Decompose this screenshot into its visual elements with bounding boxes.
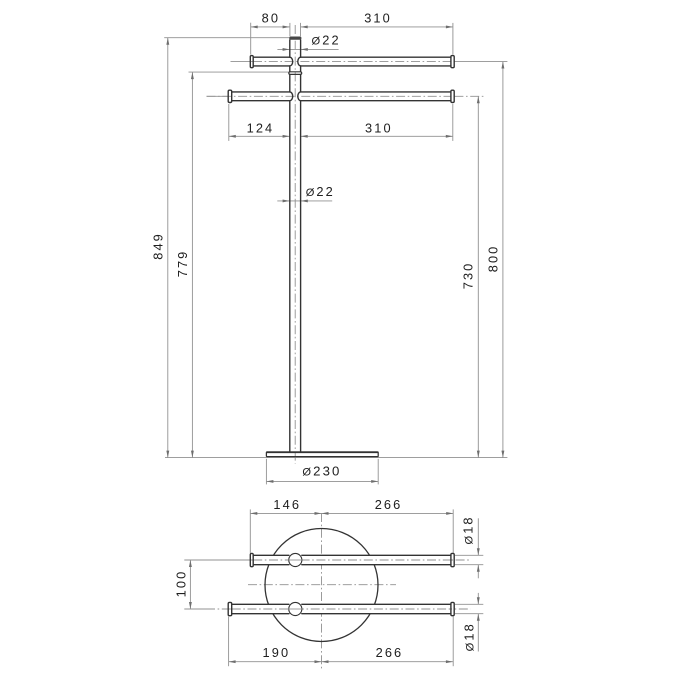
svg-text:Ø22: Ø22 [306,184,335,199]
svg-text:Ø22: Ø22 [312,33,341,48]
svg-text:Ø230: Ø230 [302,464,341,479]
svg-text:Ø18: Ø18 [461,515,476,544]
svg-text:190: 190 [263,645,291,660]
svg-text:266: 266 [376,645,404,660]
svg-text:849: 849 [150,232,165,260]
svg-text:779: 779 [175,250,190,278]
svg-text:100: 100 [173,570,188,598]
svg-text:146: 146 [273,497,301,512]
svg-text:730: 730 [461,262,476,290]
svg-text:Ø18: Ø18 [461,622,476,651]
svg-text:80: 80 [262,11,280,26]
svg-text:266: 266 [375,497,403,512]
svg-text:800: 800 [485,245,500,273]
svg-text:310: 310 [365,121,393,136]
svg-text:310: 310 [364,11,392,26]
svg-text:124: 124 [247,121,275,136]
